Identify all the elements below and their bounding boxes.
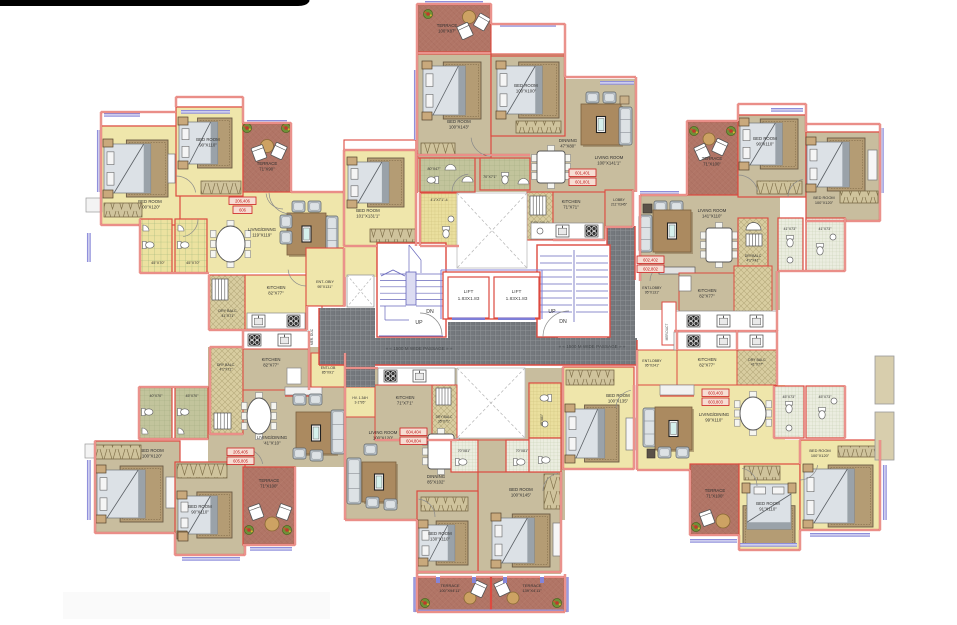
svg-text:100"X100": 100"X100" [516, 89, 537, 94]
svg-text:49"X80": 49"X80" [540, 413, 544, 426]
svg-text:TERRACE: TERRACE [702, 156, 723, 161]
svg-text:82"X77": 82"X77" [263, 363, 279, 368]
svg-text:DINNING: DINNING [427, 474, 446, 479]
svg-text:601,401: 601,401 [575, 171, 591, 176]
svg-text:ENT.LOB: ENT.LOB [321, 366, 336, 370]
svg-text:DN: DN [559, 319, 567, 325]
svg-text:71"X100": 71"X100" [706, 494, 724, 499]
svg-text:139"X4'11": 139"X4'11" [522, 588, 542, 593]
svg-text:TERRACE: TERRACE [705, 488, 726, 493]
svg-text:ENT.LOBBY: ENT.LOBBY [642, 286, 662, 290]
svg-text:1.83X1.83: 1.83X1.83 [506, 296, 528, 302]
svg-text:4'1"X41": 4'1"X41" [746, 259, 760, 263]
svg-text:41"X77": 41"X77" [751, 363, 764, 367]
svg-text:BED ROOM: BED ROOM [196, 137, 220, 142]
svg-text:BED ROOM: BED ROOM [753, 136, 777, 141]
svg-text:ENT.LOBBY: ENT.LOBBY [642, 359, 662, 363]
svg-text:606: 606 [239, 208, 247, 213]
svg-text:41"X73": 41"X73" [784, 227, 798, 231]
svg-text:BED ROOM: BED ROOM [447, 119, 471, 124]
svg-text:DRY BALC.: DRY BALC. [218, 309, 237, 313]
svg-text:LIFT: LIFT [464, 289, 474, 295]
svg-text:BED ROOM: BED ROOM [140, 448, 164, 453]
svg-text:'41"X'10": '41"X'10" [263, 441, 281, 446]
svg-text:KITCHEN: KITCHEN [698, 288, 717, 293]
svg-text:100"X120": 100"X120" [815, 200, 834, 205]
svg-text:LIVING ROOM: LIVING ROOM [369, 430, 398, 435]
svg-text:TERRACE: TERRACE [437, 23, 458, 28]
svg-text:601,801: 601,801 [575, 180, 591, 185]
svg-text:DRY BALC: DRY BALC [436, 415, 453, 419]
svg-text:91"X110": 91"X110" [759, 507, 777, 512]
svg-text:95"X241": 95"X241" [645, 364, 660, 368]
svg-text:205,405: 205,405 [233, 450, 249, 455]
svg-text:603,403: 603,403 [708, 391, 724, 396]
svg-text:HV. 1.34H: HV. 1.34H [352, 396, 368, 400]
svg-text:MER.DUCT: MER.DUCT [665, 324, 669, 341]
svg-text:4'1"X71": 4'1"X71" [219, 368, 233, 372]
svg-text:100"X141'1": 100"X141'1" [597, 161, 621, 166]
svg-text:100"X120": 100"X120" [140, 205, 161, 210]
svg-text:80"X47": 80"X47" [428, 167, 442, 171]
svg-text:45"X70": 45"X70" [186, 261, 200, 265]
svg-text:71"X100": 71"X100" [703, 162, 721, 167]
svg-text:85"X102": 85"X102" [427, 480, 445, 485]
svg-text:100"X94'11": 100"X94'11" [439, 588, 461, 593]
svg-text:71"X100": 71"X100" [260, 484, 278, 489]
svg-text:90"X110": 90"X110" [756, 142, 774, 147]
svg-text:604,404: 604,404 [406, 430, 422, 435]
svg-text:141"X110": 141"X110" [702, 214, 722, 219]
svg-text:LIVING ROOM: LIVING ROOM [698, 208, 727, 213]
svg-text:KITCHEN: KITCHEN [267, 285, 286, 290]
svg-text:45"X70": 45"X70" [186, 394, 200, 398]
svg-text:41"X73": 41"X73" [819, 227, 833, 231]
svg-text:LIFT: LIFT [512, 289, 522, 295]
svg-text:KITCHEN: KITCHEN [262, 357, 281, 362]
svg-text:82"X77": 82"X77" [268, 291, 284, 296]
svg-text:604,804: 604,804 [406, 439, 422, 444]
svg-text:BED ROOM: BED ROOM [606, 393, 630, 398]
svg-text:BED ROOM: BED ROOM [428, 531, 452, 536]
svg-text:BED ROOM: BED ROOM [514, 83, 538, 88]
svg-text:211"X345": 211"X345" [611, 203, 628, 207]
svg-text:LIVING ROOM: LIVING ROOM [595, 155, 624, 160]
svg-text:UP: UP [548, 309, 556, 315]
svg-text:41"X71": 41"X71" [221, 314, 235, 318]
svg-text:100"X120": 100"X120" [811, 453, 830, 458]
svg-text:ENT..OBIY: ENT..OBIY [316, 280, 334, 284]
svg-text:DINNING: DINNING [559, 138, 578, 143]
svg-text:90"X110": 90"X110" [199, 143, 217, 148]
svg-text:71"X71": 71"X71" [563, 205, 579, 210]
svg-text:119"X119": 119"X119" [252, 233, 272, 238]
svg-text:LOBBY: LOBBY [613, 198, 625, 202]
svg-text:LIVNG/DINNG: LIVNG/DINNG [248, 227, 277, 232]
svg-text:45"X70": 45"X70" [151, 261, 165, 265]
svg-text:101"X131'1": 101"X131'1" [356, 214, 380, 219]
svg-text:BED ROOM: BED ROOM [188, 504, 212, 509]
svg-text:35"X71": 35"X71" [438, 420, 451, 424]
svg-text:70"X7'1": 70"X7'1" [483, 175, 497, 179]
svg-text:LIVING/DINING: LIVING/DINING [699, 412, 730, 417]
svg-text:70"X81": 70"X81" [458, 449, 471, 453]
svg-text:BED ROOM: BED ROOM [509, 487, 533, 492]
svg-text:130"X110": 130"X110" [430, 537, 450, 542]
svg-text:100"X145": 100"X145" [511, 493, 532, 498]
svg-text:71"X7'1": 71"X7'1" [397, 401, 414, 406]
svg-text:3-1"95": 3-1"95" [354, 401, 366, 405]
svg-text:1.83X1.83: 1.83X1.83 [458, 296, 480, 302]
svg-text:TERRACE: TERRACE [259, 478, 280, 483]
svg-text:« « 1500 M WIDE PASSAGE » »: « « 1500 M WIDE PASSAGE » » [386, 346, 453, 351]
svg-text:KITCHEN: KITCHEN [698, 357, 717, 362]
svg-text:45"X73": 45"X73" [819, 395, 833, 399]
svg-text:82"X77": 82"X77" [699, 363, 715, 368]
svg-text:602,402: 602,402 [643, 258, 659, 263]
svg-text:TERRACE: TERRACE [257, 161, 278, 166]
svg-text:71"X90": 71"X90" [259, 167, 275, 172]
svg-text:MER. DUC: MER. DUC [310, 328, 314, 345]
svg-text:LIVING/DINING: LIVING/DINING [257, 435, 288, 440]
svg-text:UP: UP [415, 320, 423, 326]
svg-text:DRYBALC: DRYBALC [745, 254, 762, 258]
svg-text:40"X70": 40"X70" [150, 394, 164, 398]
svg-text:47"X80": 47"X80" [560, 144, 576, 149]
svg-text:45"X73": 45"X73" [783, 395, 797, 399]
svg-text:82"X77": 82"X77" [699, 294, 715, 299]
svg-text:100"X120": 100"X120" [142, 454, 163, 459]
svg-text:99"X110": 99"X110" [705, 418, 723, 423]
svg-text:KITCHEN: KITCHEN [396, 395, 415, 400]
svg-text:70"X81": 70"X81" [516, 449, 529, 453]
svg-text:100"X87": 100"X87" [438, 29, 456, 34]
svg-text:« « 1500 M WIDE PASSAGE » »: « « 1500 M WIDE PASSAGE » » [559, 344, 626, 349]
svg-text:85"X91": 85"X91" [322, 371, 335, 375]
svg-text:603,803: 603,803 [708, 400, 724, 405]
svg-text:100"X143": 100"X143" [449, 125, 470, 130]
svg-text:BED ROOM: BED ROOM [756, 501, 780, 506]
svg-text:90"X110": 90"X110" [191, 510, 209, 515]
svg-text:605,805: 605,805 [233, 459, 249, 464]
svg-text:602,802: 602,802 [643, 267, 659, 272]
svg-text:DRY BALC: DRY BALC [748, 358, 766, 362]
svg-text:206,406: 206,406 [235, 199, 251, 204]
svg-text:KITCHEN: KITCHEN [562, 199, 581, 204]
svg-text:BED ROOM: BED ROOM [356, 208, 380, 213]
svg-text:4'1"X7'1"-4: 4'1"X7'1"-4 [430, 198, 447, 202]
svg-text:DRY BALC.: DRY BALC. [217, 363, 235, 367]
svg-text:95"X131": 95"X131" [645, 291, 660, 295]
svg-text:95"X131": 95"X131" [317, 285, 333, 289]
